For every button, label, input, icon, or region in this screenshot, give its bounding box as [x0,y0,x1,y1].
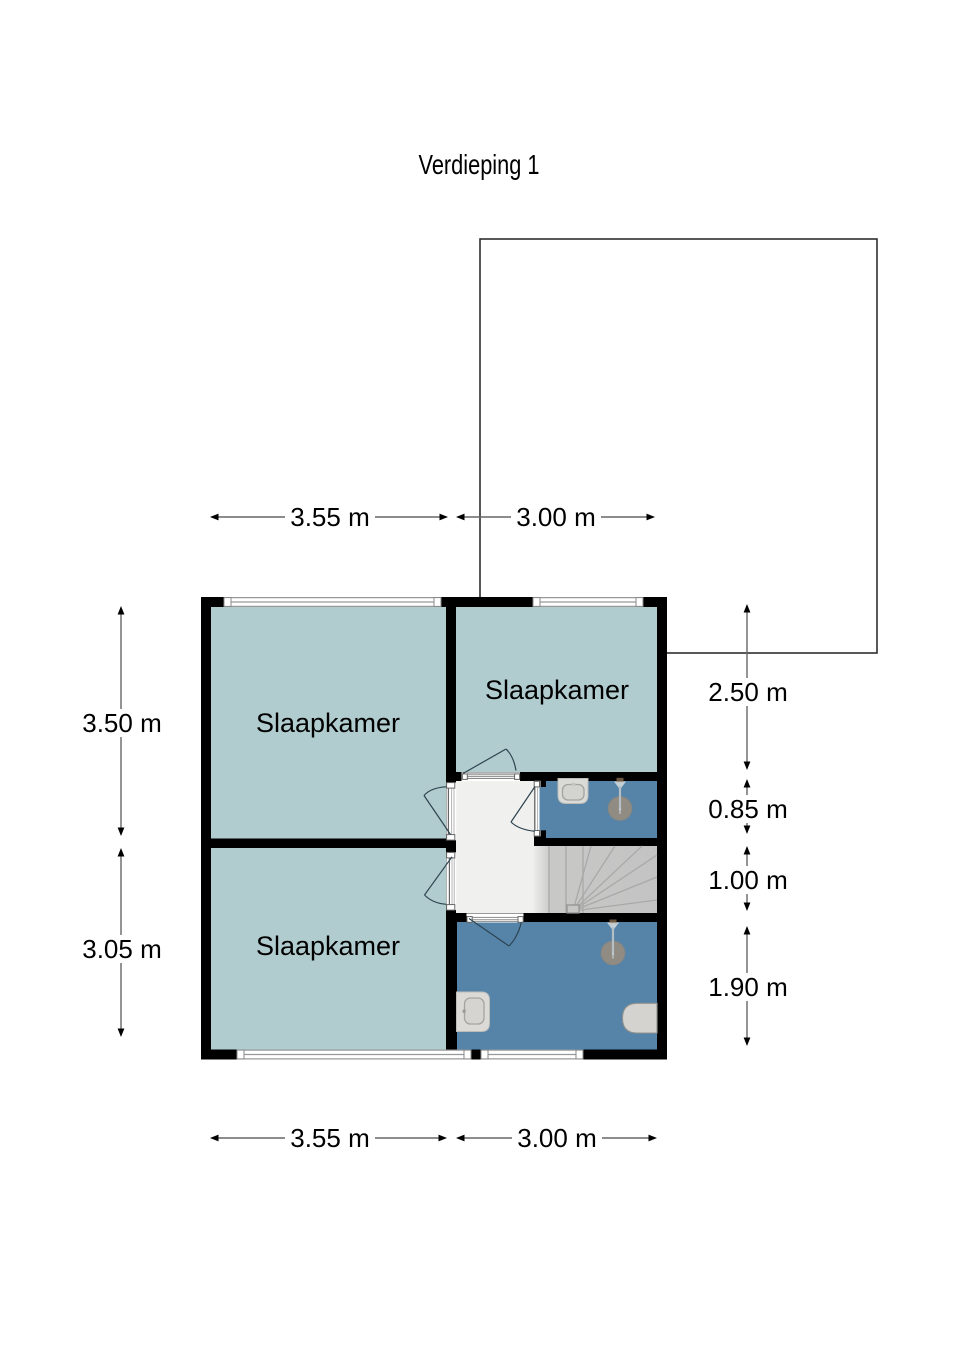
svg-text:1.00 m: 1.00 m [708,865,788,895]
svg-text:3.55 m: 3.55 m [290,502,370,532]
svg-text:2.50 m: 2.50 m [708,677,788,707]
svg-text:3.05 m: 3.05 m [82,934,162,964]
svg-text:3.00 m: 3.00 m [517,1123,597,1153]
svg-text:0.85 m: 0.85 m [708,794,788,824]
svg-text:3.00 m: 3.00 m [516,502,596,532]
svg-text:3.50 m: 3.50 m [82,708,162,738]
svg-text:Verdieping 1: Verdieping 1 [419,149,540,180]
svg-text:Slaapkamer: Slaapkamer [256,708,400,738]
svg-text:1.90 m: 1.90 m [708,972,788,1002]
svg-text:Slaapkamer: Slaapkamer [485,675,629,705]
svg-text:3.55 m: 3.55 m [290,1123,370,1153]
svg-text:Slaapkamer: Slaapkamer [256,931,400,961]
